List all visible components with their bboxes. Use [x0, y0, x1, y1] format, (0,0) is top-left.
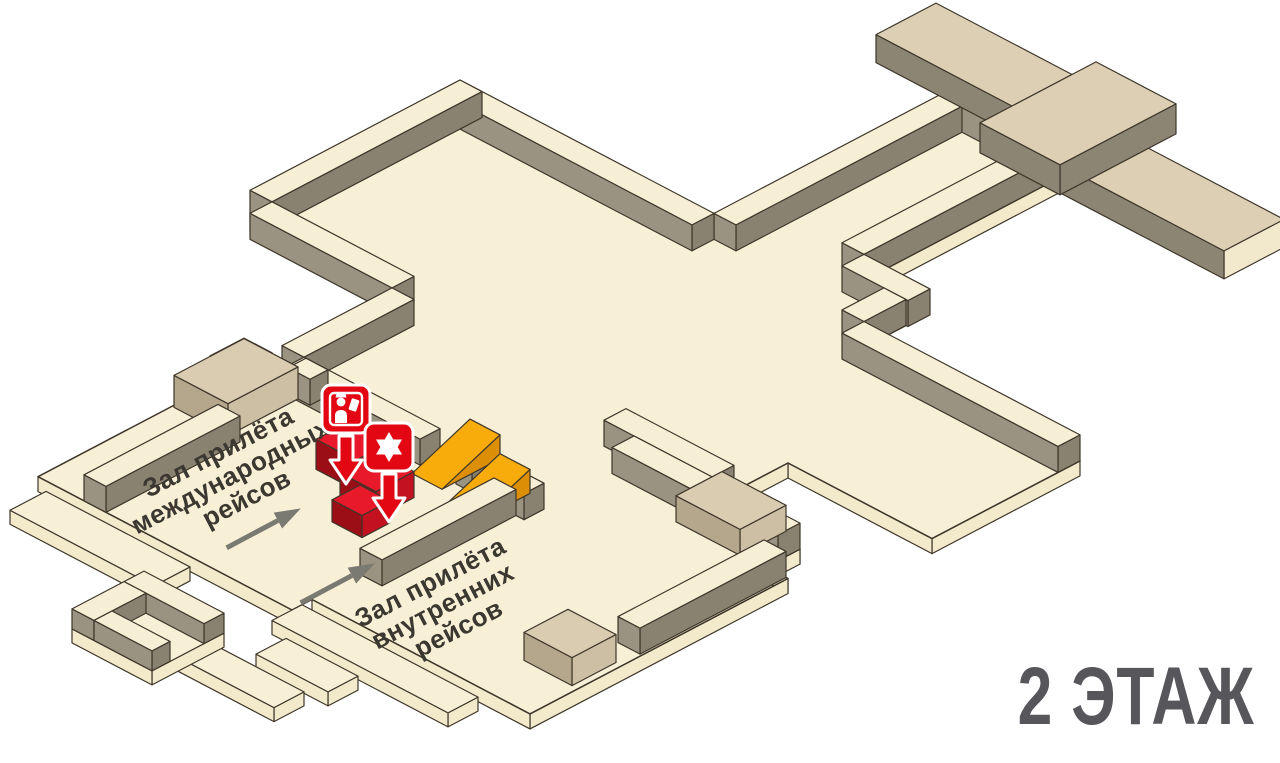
airport-terminal-map-page: Зал прилёта международных рейсов Зал при… — [0, 0, 1280, 763]
terminal-floor-map: Зал прилёта международных рейсов Зал при… — [0, 0, 1280, 763]
floor-level-label: 2 ЭТАЖ — [1018, 651, 1255, 742]
terminal-geometry — [10, 3, 1280, 729]
